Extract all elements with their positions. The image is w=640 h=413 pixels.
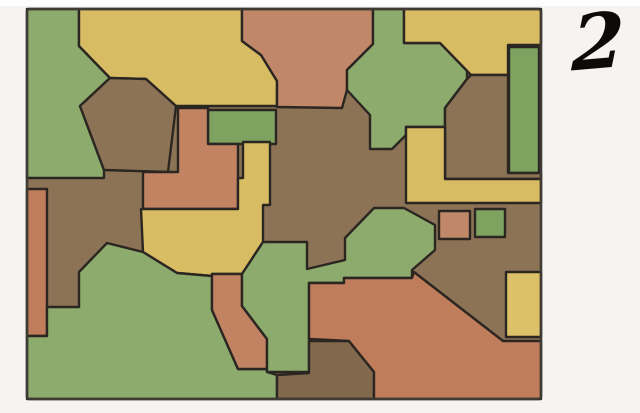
- region-orange-left-bar: [27, 189, 47, 336]
- region-yellow-right-rect: [506, 272, 541, 337]
- region-green-bar: [509, 47, 539, 173]
- puzzle-page: 2: [0, 0, 640, 413]
- region-orange-square: [439, 211, 470, 239]
- region-green-rect: [208, 110, 276, 144]
- puzzle-number-label: 2: [555, 0, 640, 92]
- region-green-square: [475, 209, 505, 237]
- puzzle-map: [0, 0, 640, 413]
